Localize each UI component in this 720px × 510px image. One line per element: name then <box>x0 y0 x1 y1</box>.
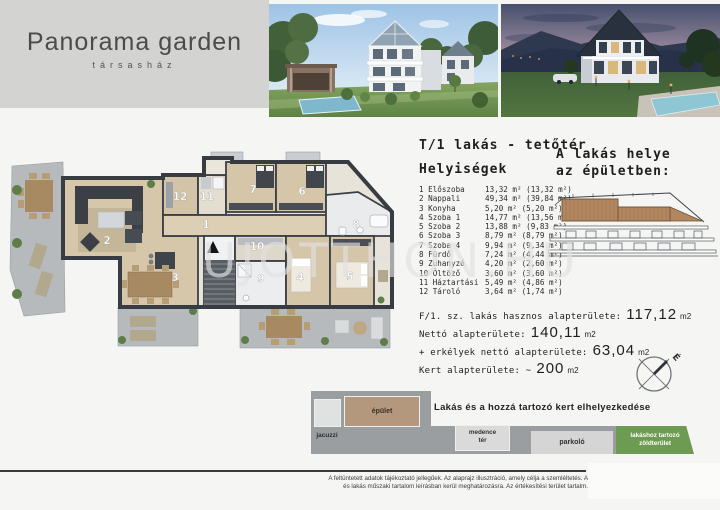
compass-north-label: É <box>670 351 683 364</box>
disclaimer-line1: A feltüntetett adatok tájékoztató jelleg… <box>200 475 588 483</box>
room-label-6: 6 <box>298 186 305 198</box>
total-label: F/1. sz. lakás hasznos alapterülete: <box>419 312 621 322</box>
total-row: Nettó alapterülete: 140,11 m2 <box>419 324 709 342</box>
footer-divider <box>0 470 586 472</box>
room-label-3: 3 <box>171 272 178 284</box>
total-label: Kert alapterülete: ~ <box>419 366 531 376</box>
room-label-7: 7 <box>249 184 256 196</box>
room-area: 3,64 m² (1,74 m²) <box>485 287 563 296</box>
page-subtitle: társasház <box>0 60 269 70</box>
total-unit: m2 <box>585 330 596 339</box>
total-row: F/1. sz. lakás hasznos alapterülete: 117… <box>419 306 709 324</box>
total-unit: m2 <box>567 366 578 375</box>
siteplan-jacuzzi-label: jacuzzi <box>305 432 349 439</box>
room-name: 4 Szoba 1 <box>419 213 485 222</box>
room-label-8: 8 <box>352 219 359 231</box>
siteplan-green-line1: lakáshoz tartozó <box>616 432 694 440</box>
white-coverup-patch <box>588 463 720 499</box>
room-name: 3 Konyha <box>419 204 485 213</box>
siteplan-parking-box: parkoló <box>531 431 613 454</box>
total-unit: m2 <box>680 312 691 321</box>
page-title: Panorama garden <box>0 28 269 57</box>
room-name: 1 Előszoba <box>419 185 485 194</box>
room-name: 10 Öltöző <box>419 269 485 278</box>
room-row: 11 Háztartási5,49 m² (4,86 m²) <box>419 278 583 287</box>
siteplan: jacuzzi épület Lakás és a hozzá tartozó … <box>303 388 708 460</box>
siteplan-pool-line1: medence <box>456 429 509 437</box>
siteplan-green-line2: zöldterület <box>616 440 694 448</box>
room-label-5: 5 <box>346 271 353 283</box>
total-value: 140,11 <box>531 324 582 341</box>
floorplan: 1 2 3 4 5 6 7 8 9 10 11 12 <box>8 140 410 402</box>
room-area: 5,49 m² (4,86 m²) <box>485 278 563 287</box>
brochure-page: Panorama garden társasház <box>0 0 720 510</box>
siteplan-building-box: épület <box>344 396 420 427</box>
siteplan-jacuzzi-box <box>314 399 341 427</box>
siteplan-title: Lakás és a hozzá tartozó kert elhelyezke… <box>434 402 684 413</box>
header-block: Panorama garden társasház <box>0 0 269 108</box>
exterior-render-day-image <box>269 4 498 117</box>
room-label-2: 2 <box>103 235 110 247</box>
room-label-12: 12 <box>173 191 188 203</box>
room-row: 12 Tároló3,64 m² (1,74 m²) <box>419 287 583 296</box>
room-area: 3,60 m² (3,60 m²) <box>485 269 563 278</box>
room-name: 9 Zuhanyzó <box>419 259 485 268</box>
disclaimer-line2: és lakás műszaki tartalom leírásban kerü… <box>200 483 588 491</box>
location-heading-line2: az épületben: <box>556 163 671 180</box>
room-label-10: 10 <box>250 241 265 253</box>
siteplan-pool-box: medence tér <box>455 425 510 451</box>
exterior-render-dusk-image <box>501 4 720 117</box>
room-label-1: 1 <box>202 219 209 231</box>
total-value: 117,12 <box>626 306 677 323</box>
siteplan-green-box: lakáshoz tartozó zöldterület <box>616 426 694 454</box>
room-name: 11 Háztartási <box>419 278 485 287</box>
room-label-4: 4 <box>296 272 303 284</box>
room-label-9: 9 <box>257 273 264 285</box>
room-label-11: 11 <box>200 191 215 203</box>
room-name: 7 Szoba 4 <box>419 241 485 250</box>
room-row: 10 Öltöző3,60 m² (3,60 m²) <box>419 269 583 278</box>
disclaimer: A feltüntetett adatok tájékoztató jelleg… <box>200 475 588 491</box>
room-name: 5 Szoba 2 <box>419 222 485 231</box>
rooms-heading: Helyiségek <box>419 162 507 177</box>
room-name: 12 Tároló <box>419 287 485 296</box>
total-label: Nettó alapterülete: <box>419 330 526 340</box>
siteplan-pool-line2: tér <box>456 437 509 445</box>
room-name: 2 Nappali <box>419 194 485 203</box>
room-name: 6 Szoba 3 <box>419 231 485 240</box>
room-hall <box>163 215 340 236</box>
total-value: 200 <box>536 360 564 377</box>
location-heading-line1: A lakás helye <box>556 146 671 163</box>
room-name: 8 Fürdő <box>419 250 485 259</box>
building-section-drawing <box>548 190 718 268</box>
total-label: + erkélyek nettó alapterülete: <box>419 348 588 358</box>
location-heading: A lakás helye az épületben: <box>556 146 671 180</box>
